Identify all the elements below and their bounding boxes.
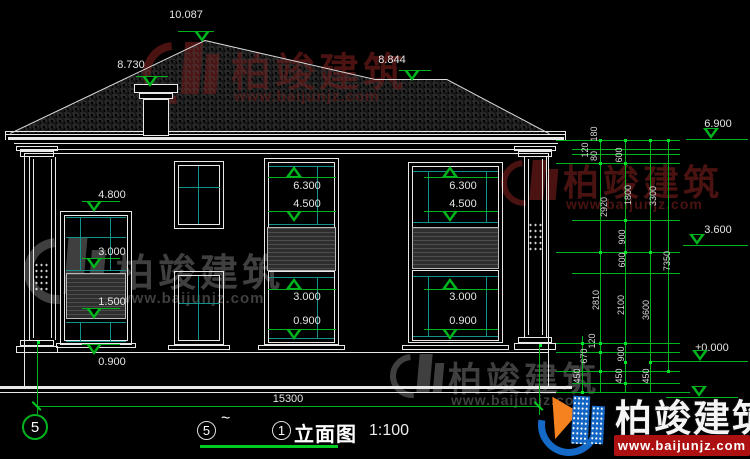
- level-triangle-inner: [707, 129, 715, 135]
- dimension-node: [649, 139, 652, 142]
- elevation-value: 0.900: [445, 315, 481, 327]
- level-line: [268, 289, 336, 290]
- elevation-value: 4.500: [289, 198, 325, 210]
- level-triangle-inner: [90, 345, 98, 351]
- level-line: [424, 289, 498, 290]
- dimension-node: [624, 162, 627, 165]
- dimension-line: [38, 406, 540, 407]
- level-triangle-inner: [446, 170, 454, 176]
- elevation-value: 10.087: [164, 9, 208, 21]
- level-line: [424, 329, 498, 330]
- level-triangle-inner: [290, 282, 298, 288]
- level-line: [686, 139, 748, 140]
- title-axis-to: 1: [272, 421, 291, 440]
- elevation-value: 8.730: [109, 59, 153, 71]
- dimension-node: [599, 351, 602, 354]
- elevation-value: 4.500: [445, 198, 481, 210]
- brand-name: 柏竣建筑: [615, 388, 750, 442]
- title-axis-from: 5: [197, 421, 216, 440]
- level-triangle-inner: [90, 259, 98, 265]
- dimension-value: 2810: [591, 285, 601, 315]
- level-line: [268, 329, 336, 330]
- dimension-node: [649, 251, 652, 254]
- brand-url-banner: www.baijunjz.com: [614, 435, 750, 456]
- level-triangle-inner: [290, 170, 298, 176]
- level-line: [268, 211, 336, 212]
- elevation-value: 4.800: [94, 189, 130, 201]
- overall-dimension-label: 15300: [264, 393, 312, 405]
- dimension-value: 3300: [648, 181, 658, 211]
- elevation-value: 3.000: [289, 291, 325, 303]
- level-triangle-inner: [90, 309, 98, 315]
- level-triangle-inner: [146, 77, 154, 83]
- dimension-line: [600, 140, 601, 392]
- axis-bubble-5: 5: [22, 414, 48, 440]
- dimension-node: [37, 341, 40, 344]
- level-triangle-inner: [198, 32, 206, 38]
- level-triangle-inner: [696, 351, 704, 357]
- level-triangle-inner: [408, 71, 416, 77]
- elevation-value: 0.900: [94, 356, 130, 368]
- dimension-node: [539, 344, 542, 347]
- level-triangle-inner: [446, 330, 454, 336]
- dimension-line: [650, 140, 651, 392]
- dimension-node: [599, 139, 602, 142]
- brand-badge: 柏竣建筑 www.baijunjz.com: [534, 384, 750, 459]
- dimension-value: 80: [589, 141, 599, 171]
- dimension-node: [599, 342, 602, 345]
- dimension-line: [37, 342, 38, 414]
- level-triangle-inner: [290, 330, 298, 336]
- brand-logo-icon: [534, 386, 614, 458]
- level-line: [268, 177, 336, 178]
- elevation-value: 1.500: [94, 296, 130, 308]
- elevation-drawing: 柏竣建筑 www.baijunjz.com 柏竣建筑 www.baijunjz.…: [0, 0, 750, 459]
- dimension-node: [599, 162, 602, 165]
- dimension-value: 2920: [599, 192, 609, 222]
- level-triangle-inner: [290, 212, 298, 218]
- level-line: [652, 361, 748, 362]
- level-triangle-inner: [693, 235, 701, 241]
- elevation-value: 3.000: [94, 246, 130, 258]
- elevation-value: 6.300: [445, 180, 481, 192]
- dimension-node: [667, 370, 670, 373]
- dimension-value: 1800: [623, 180, 633, 210]
- elevation-value: 0.900: [289, 315, 325, 327]
- dimension-node: [667, 139, 670, 142]
- dimension-value: 7350: [662, 246, 672, 276]
- level-triangle-inner: [90, 202, 98, 208]
- dimension-value: 2100: [616, 290, 626, 320]
- level-line: [424, 211, 498, 212]
- level-triangle-inner: [446, 212, 454, 218]
- dimension-value: 3600: [641, 295, 651, 325]
- dimension-value: 600: [614, 140, 624, 170]
- level-line: [424, 177, 498, 178]
- elevation-value: 3.000: [445, 291, 481, 303]
- elevation-value: 6.300: [289, 180, 325, 192]
- level-line: [683, 245, 748, 246]
- elevation-value: 8.844: [370, 54, 414, 66]
- dimension-node: [599, 251, 602, 254]
- level-triangle-inner: [446, 282, 454, 288]
- dimension-node: [599, 370, 602, 373]
- dimension-value: 600: [617, 245, 627, 275]
- dimension-node: [624, 139, 627, 142]
